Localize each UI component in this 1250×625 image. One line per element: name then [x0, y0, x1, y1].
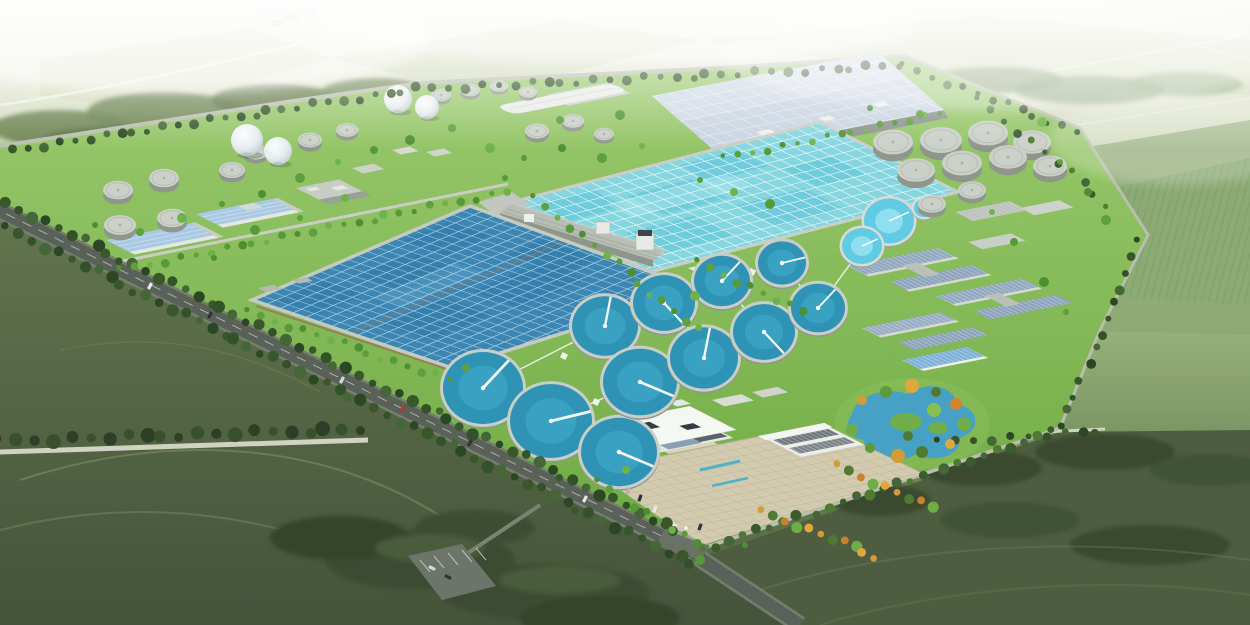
rendering-stage: [0, 0, 1250, 625]
aerial-plant-rendering: [0, 0, 1250, 625]
